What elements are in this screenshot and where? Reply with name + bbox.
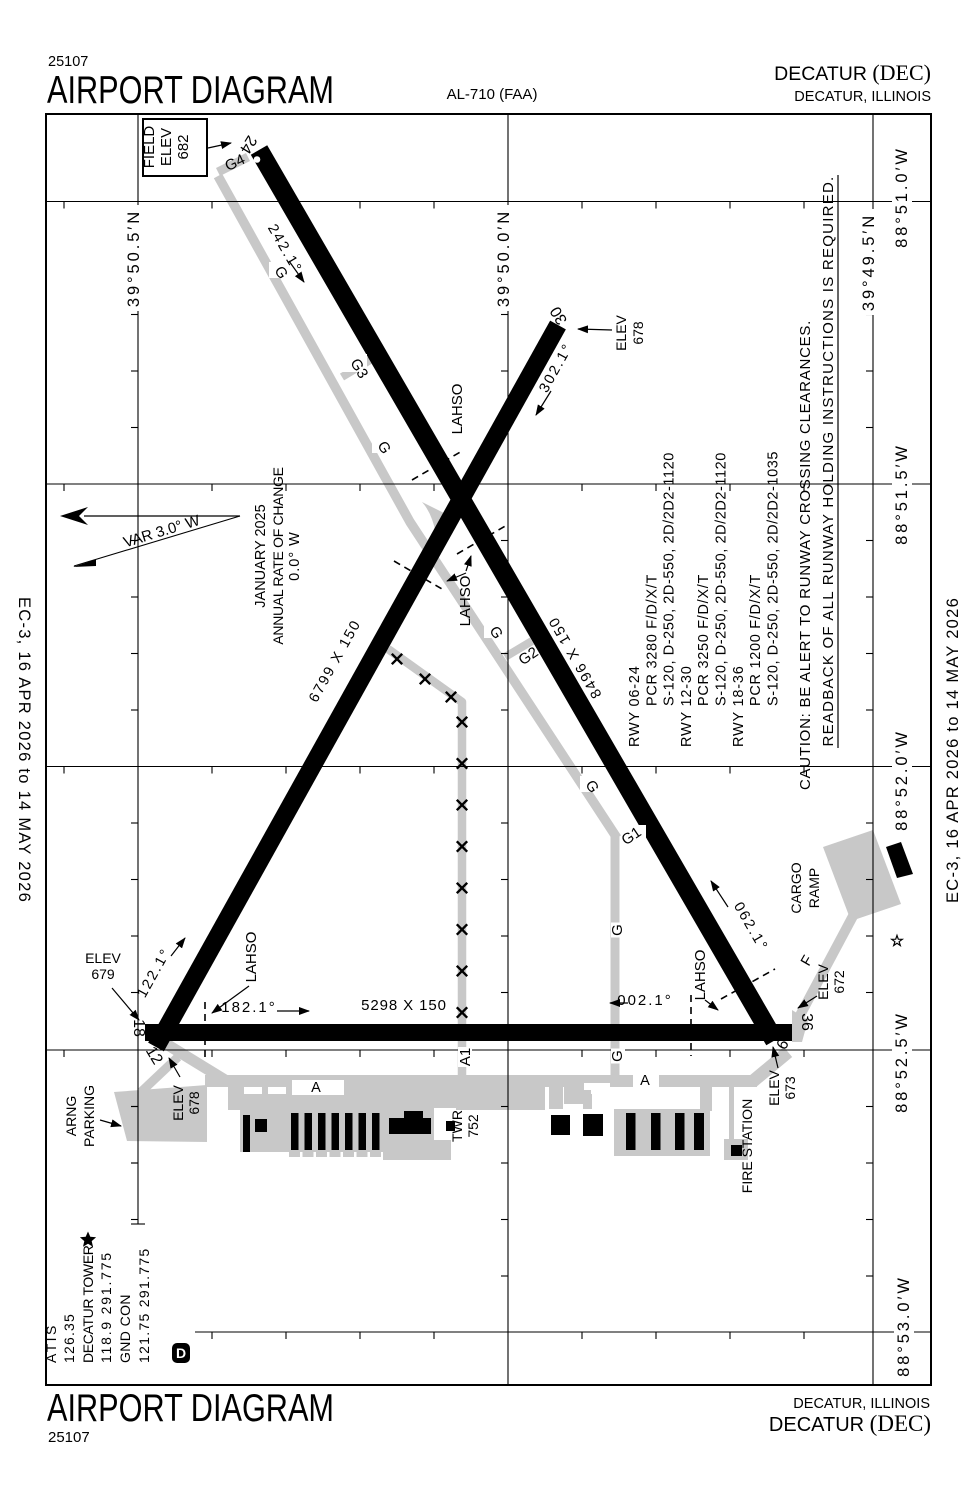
svg-text:18: 18 bbox=[130, 1019, 147, 1037]
svg-text:DECATUR, ILLINOIS: DECATUR, ILLINOIS bbox=[793, 1396, 930, 1412]
svg-text:DECATUR (DEC): DECATUR (DEC) bbox=[769, 1411, 931, 1436]
svg-text:A1: A1 bbox=[457, 1048, 474, 1066]
svg-text:S-120, D-250, 2D-550, 2D/2D2-1: S-120, D-250, 2D-550, 2D/2D2-1120 bbox=[662, 452, 678, 706]
svg-text:LAHSO: LAHSO bbox=[243, 932, 260, 983]
svg-text:ANNUAL RATE OF CHANGE: ANNUAL RATE OF CHANGE bbox=[270, 467, 286, 644]
svg-text:AL-710 (FAA): AL-710 (FAA) bbox=[447, 86, 538, 103]
svg-text:25107: 25107 bbox=[48, 54, 88, 70]
svg-text:88°52.5′W: 88°52.5′W bbox=[893, 1011, 911, 1113]
svg-text:39°50.0′N: 39°50.0′N bbox=[495, 209, 513, 307]
svg-text:RAMP: RAMP bbox=[806, 868, 822, 908]
svg-text:PCR 3250 F/D/X/T: PCR 3250 F/D/X/T bbox=[696, 574, 712, 706]
svg-text:ELEV: ELEV bbox=[85, 950, 121, 966]
svg-text:118.9 291.775: 118.9 291.775 bbox=[98, 1251, 114, 1363]
svg-text:88°52.0′W: 88°52.0′W bbox=[893, 729, 911, 831]
svg-text:679: 679 bbox=[91, 966, 115, 982]
svg-text:ELEV: ELEV bbox=[170, 1084, 186, 1120]
svg-text:READBACK OF ALL RUNWAY HOLDING: READBACK OF ALL RUNWAY HOLDING INSTRUCTI… bbox=[820, 176, 837, 747]
svg-text:126.35: 126.35 bbox=[61, 1313, 77, 1363]
svg-text:CARGO: CARGO bbox=[788, 862, 804, 913]
svg-text:5298 X 150: 5298 X 150 bbox=[361, 997, 447, 1014]
svg-text:G: G bbox=[609, 924, 626, 936]
svg-text:LAHSO: LAHSO bbox=[449, 384, 466, 435]
svg-text:LAHSO: LAHSO bbox=[692, 950, 709, 1001]
svg-text:A: A bbox=[311, 1080, 321, 1096]
svg-text:LAHSO: LAHSO bbox=[457, 576, 474, 627]
svg-text:88°53.0′W: 88°53.0′W bbox=[895, 1275, 913, 1377]
svg-text:ELEV: ELEV bbox=[158, 128, 175, 166]
svg-text:DECATUR (DEC): DECATUR (DEC) bbox=[774, 60, 931, 85]
svg-text:PARKING: PARKING bbox=[81, 1085, 97, 1147]
svg-text:FIRE STATION: FIRE STATION bbox=[739, 1099, 755, 1193]
svg-text:JANUARY 2025: JANUARY 2025 bbox=[253, 504, 269, 607]
svg-text:752: 752 bbox=[465, 1114, 481, 1138]
svg-text:TWR: TWR bbox=[449, 1110, 465, 1142]
svg-text:S-120, D-250, 2D-550, 2D/2D2-1: S-120, D-250, 2D-550, 2D/2D2-1120 bbox=[714, 452, 730, 706]
svg-text:PCR 3280 F/D/X/T: PCR 3280 F/D/X/T bbox=[644, 574, 660, 706]
svg-text:DECATUR, ILLINOIS: DECATUR, ILLINOIS bbox=[794, 89, 931, 105]
svg-text:ELEV: ELEV bbox=[613, 314, 629, 350]
svg-text:36: 36 bbox=[798, 1013, 815, 1031]
svg-text:121.75 291.775: 121.75 291.775 bbox=[136, 1247, 152, 1363]
svg-text:D: D bbox=[176, 1345, 186, 1361]
svg-text:EC-3, 16 APR 2026 to 14 MAY: EC-3, 16 APR 2026 to 14 MAY 2026 bbox=[944, 597, 962, 903]
svg-text:PCR 1200 F/D/X/T: PCR 1200 F/D/X/T bbox=[748, 574, 764, 706]
svg-text:ELEV: ELEV bbox=[815, 963, 831, 999]
svg-text:RWY 18-36: RWY 18-36 bbox=[731, 665, 747, 747]
svg-text:AIRPORT DIAGRAM: AIRPORT DIAGRAM bbox=[47, 1387, 334, 1430]
svg-text:RWY 12-30: RWY 12-30 bbox=[679, 665, 695, 747]
svg-text:A: A bbox=[640, 1073, 650, 1089]
svg-text:39°50.5′N: 39°50.5′N bbox=[125, 209, 143, 307]
svg-text:G: G bbox=[609, 1050, 626, 1062]
svg-text:182.1°: 182.1° bbox=[221, 999, 277, 1016]
svg-text:EC-3, 16 APR 2026 to 14 MAY: EC-3, 16 APR 2026 to 14 MAY 2026 bbox=[15, 597, 33, 903]
svg-text:682: 682 bbox=[175, 134, 192, 159]
svg-text:0.0° W: 0.0° W bbox=[287, 531, 303, 581]
svg-text:ARNG: ARNG bbox=[63, 1096, 79, 1136]
svg-text:GND CON: GND CON bbox=[117, 1294, 133, 1363]
svg-text:678: 678 bbox=[186, 1091, 202, 1115]
svg-text:AIRPORT DIAGRAM: AIRPORT DIAGRAM bbox=[47, 69, 334, 112]
svg-text:002.1°: 002.1° bbox=[617, 992, 673, 1009]
svg-text:88°51.0′W: 88°51.0′W bbox=[893, 146, 911, 248]
svg-text:ELEV: ELEV bbox=[766, 1069, 782, 1105]
svg-text:S-120, D-250, 2D-550, 2D/2D2-1: S-120, D-250, 2D-550, 2D/2D2-1035 bbox=[765, 451, 781, 706]
svg-text:DECATUR TOWER: DECATUR TOWER bbox=[80, 1245, 96, 1363]
svg-text:FIELD: FIELD bbox=[141, 126, 158, 169]
svg-text:673: 673 bbox=[782, 1076, 798, 1100]
svg-text:CAUTION: BE ALERT TO RUNWAY CR: CAUTION: BE ALERT TO RUNWAY CROSSING CLE… bbox=[797, 320, 814, 790]
svg-text:672: 672 bbox=[831, 970, 847, 994]
svg-text:88°51.5′W: 88°51.5′W bbox=[893, 443, 911, 545]
svg-text:678: 678 bbox=[630, 321, 646, 345]
svg-text:39°49.5′N: 39°49.5′N bbox=[860, 213, 878, 311]
svg-text:25107: 25107 bbox=[48, 1429, 90, 1446]
svg-text:RWY 06-24: RWY 06-24 bbox=[627, 665, 643, 747]
